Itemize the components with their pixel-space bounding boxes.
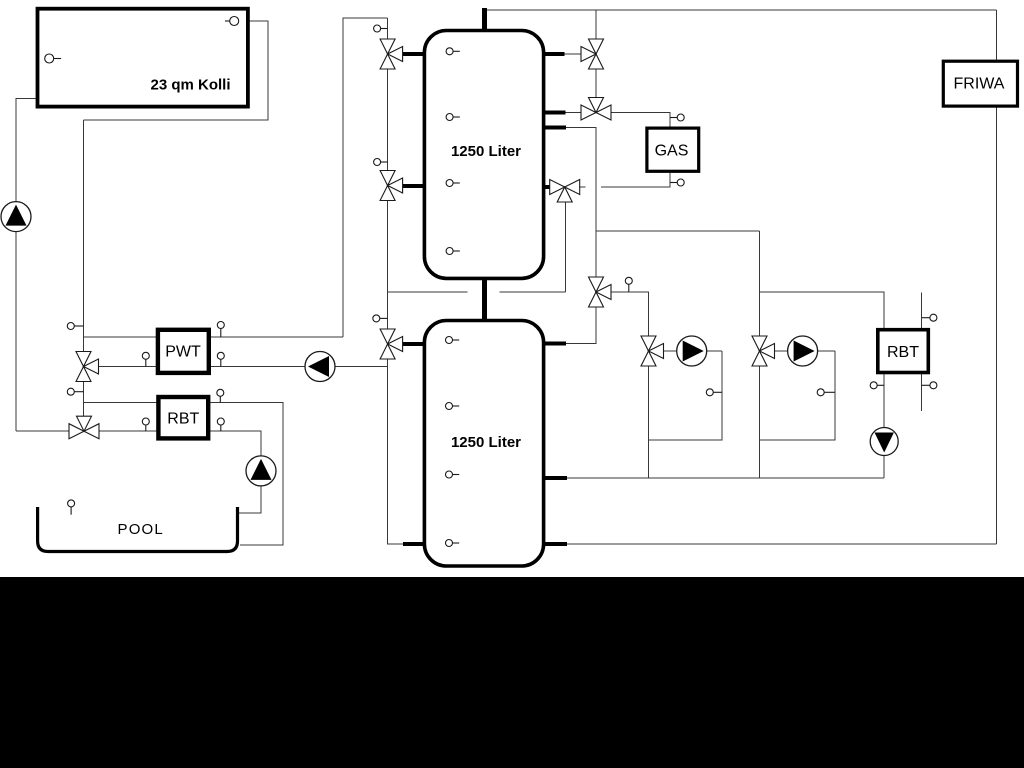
svg-text:1250 Liter: 1250 Liter (451, 434, 521, 451)
svg-text:FRIWA: FRIWA (954, 76, 1005, 93)
svg-text:RBT: RBT (167, 411, 199, 428)
svg-text:POOL: POOL (118, 521, 164, 538)
svg-text:RBT: RBT (887, 344, 919, 361)
svg-text:PWT: PWT (165, 343, 201, 360)
svg-text:GAS: GAS (655, 143, 689, 160)
svg-text:23 qm Kolli: 23 qm Kolli (150, 77, 230, 94)
svg-text:1250 Liter: 1250 Liter (451, 143, 521, 160)
